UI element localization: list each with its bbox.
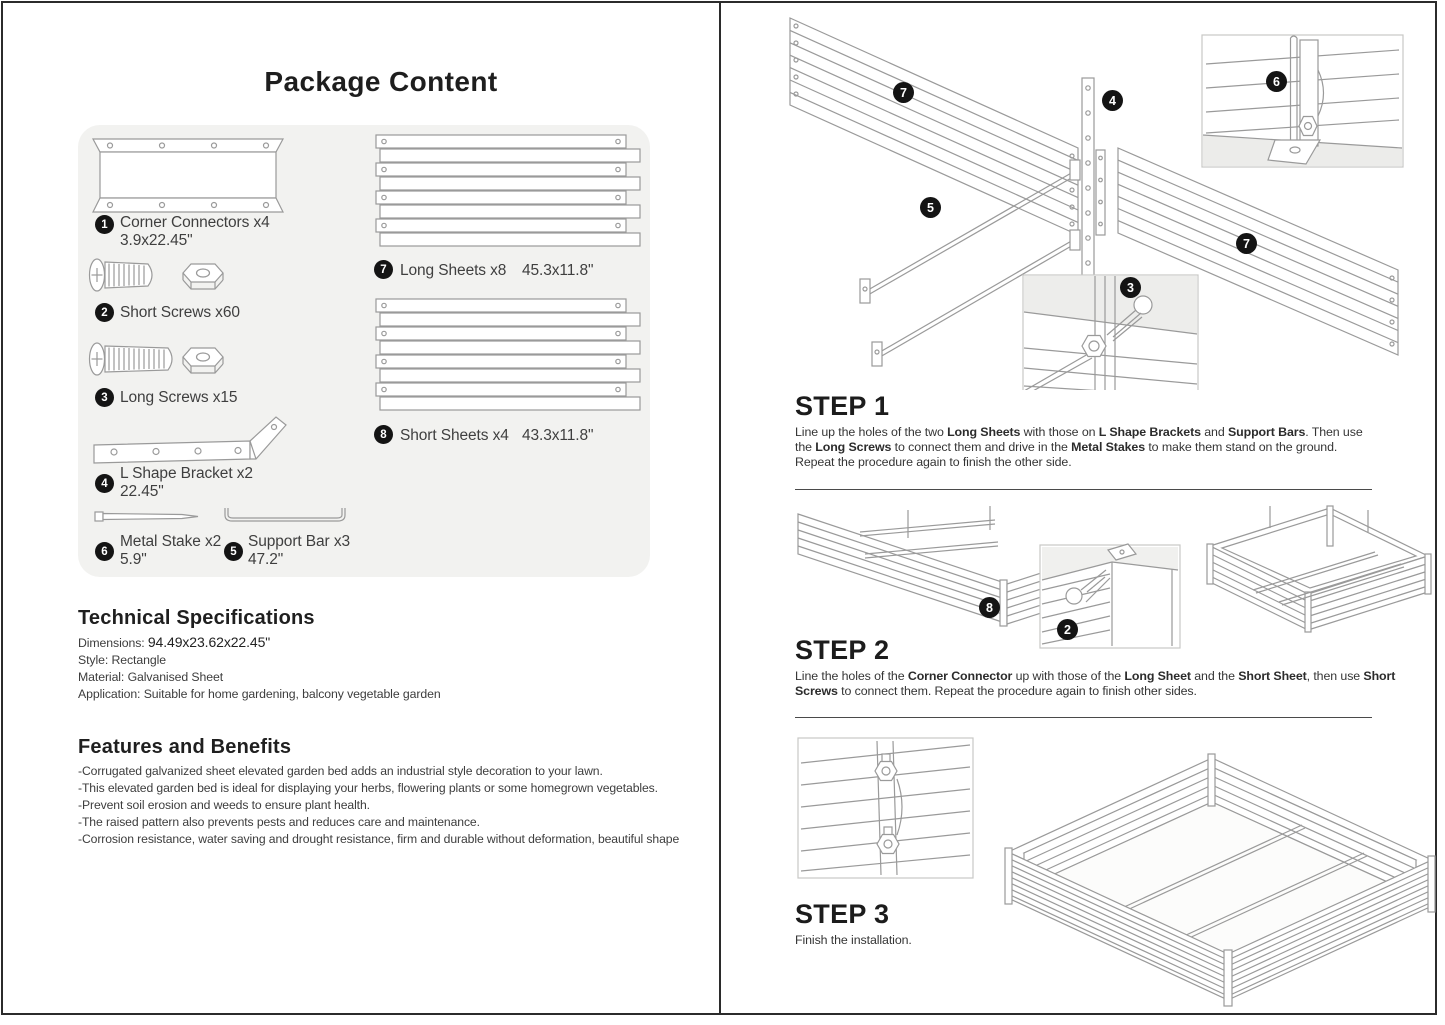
item-label: Metal Stake x2 [120, 533, 221, 551]
feature-bullet: -Corrosion resistance, water saving and … [78, 832, 679, 846]
step2-badge-assembly: 8 [979, 597, 1000, 618]
feature-bullet: -This elevated garden bed is ideal for d… [78, 781, 658, 795]
item-dimension: 47.2" [248, 551, 283, 569]
item-label: Support Bar x3 [248, 533, 350, 551]
section-divider [795, 489, 1372, 490]
feature-bullet: -Corrugated galvanized sheet elevated ga… [78, 764, 603, 778]
item-dimension: 5.9" [120, 551, 147, 569]
step3-heading: STEP 3 [795, 899, 889, 930]
step1-badge-screw: 3 [1120, 277, 1141, 298]
features-heading: Features and Benefits [78, 736, 291, 759]
step1-badge-long-sheet-right: 7 [1236, 233, 1257, 254]
package-content-panel: 1 Corner Connectors x4 3.9x22.45" 2 Shor… [78, 125, 650, 577]
item-label: Short Sheets x4 [400, 427, 509, 445]
step3-finished-bed-diagram [1000, 750, 1437, 1008]
spec-material: Material: Galvanised Sheet [78, 670, 223, 684]
step2-instructions: Line the holes of the Corner Connector u… [795, 669, 1405, 699]
step1-badge-support-bar: 5 [920, 197, 941, 218]
step3-bracket-inset-diagram [797, 737, 974, 879]
long-screw-icon [88, 339, 182, 379]
column-divider [719, 2, 721, 1013]
item-label: Long Sheets x8 [400, 262, 506, 280]
item-label: Long Screws x15 [120, 389, 237, 407]
step2-heading: STEP 2 [795, 635, 889, 666]
l-shape-bracket-icon [92, 413, 290, 465]
spec-application: Application: Suitable for home gardening… [78, 687, 441, 701]
hex-nut-icon [182, 343, 224, 375]
step1-heading: STEP 1 [795, 391, 889, 422]
spec-dimensions: Dimensions: 94.49x23.62x22.45" [78, 634, 270, 650]
item-badge: 7 [374, 260, 393, 279]
step1-instructions: Line up the holes of the two Long Sheets… [795, 425, 1379, 470]
item-badge: 5 [224, 542, 243, 561]
tech-specs-heading: Technical Specifications [78, 607, 315, 630]
step1-diagram [730, 8, 1437, 390]
item-badge: 4 [95, 474, 114, 493]
feature-bullet: -The raised pattern also prevents pests … [78, 815, 480, 829]
step1-badge-long-sheet: 7 [893, 82, 914, 103]
item-dimension: 43.3x11.8" [522, 427, 593, 445]
short-screw-icon [88, 255, 162, 295]
spec-dimensions-label: Dimensions: [78, 636, 148, 650]
spec-style: Style: Rectangle [78, 653, 166, 667]
metal-stake-icon [94, 508, 200, 524]
item-dimension: 22.45" [120, 483, 164, 501]
step3-instructions: Finish the installation. [795, 933, 1195, 948]
item-dimension: 45.3x11.8" [522, 262, 593, 280]
item-badge: 2 [95, 303, 114, 322]
hex-nut-icon [182, 259, 224, 291]
short-sheets-icon [372, 297, 644, 417]
item-badge: 6 [95, 542, 114, 561]
section-divider [795, 717, 1372, 718]
corner-connector-icon [90, 137, 286, 215]
page-title: Package Content [78, 66, 684, 98]
support-bar-icon [222, 505, 348, 525]
item-label: Corner Connectors x4 [120, 214, 270, 232]
long-sheets-icon [372, 133, 644, 253]
spec-dimensions-value: 94.49x23.62x22.45" [148, 634, 270, 650]
item-badge: 8 [374, 425, 393, 444]
step1-badge-stake: 6 [1266, 71, 1287, 92]
item-badge: 1 [95, 215, 114, 234]
item-badge: 3 [95, 388, 114, 407]
feature-bullet: -Prevent soil erosion and weeds to ensur… [78, 798, 370, 812]
step2-badge-screw: 2 [1057, 619, 1078, 640]
item-dimension: 3.9x22.45" [120, 232, 193, 250]
item-label: Short Screws x60 [120, 304, 240, 322]
item-label: L Shape Bracket x2 [120, 465, 253, 483]
step1-badge-bracket: 4 [1102, 90, 1123, 111]
step2-diagram [790, 498, 1438, 650]
